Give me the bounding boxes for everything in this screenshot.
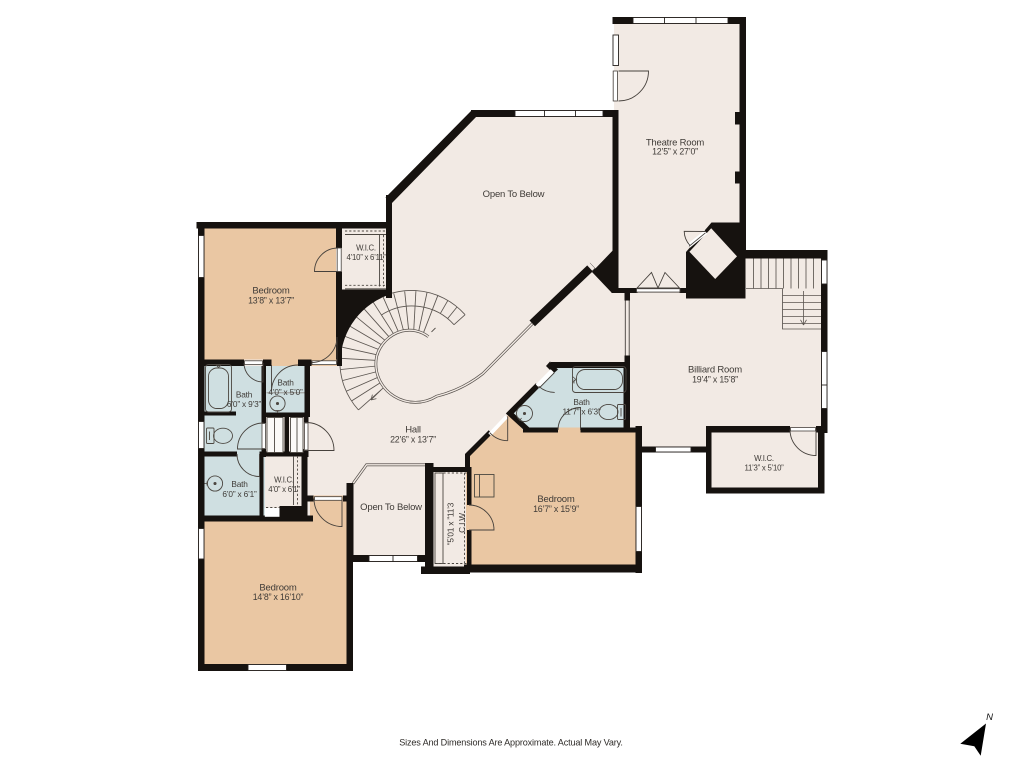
svg-text:4’0” x 5’0”: 4’0” x 5’0”	[268, 387, 303, 397]
svg-text:Bath: Bath	[573, 397, 590, 407]
svg-text:22’6” x 13’7”: 22’6” x 13’7”	[390, 435, 436, 445]
svg-text:W.I.C.: W.I.C.	[754, 454, 774, 463]
svg-text:.C.I.W: .C.I.W	[457, 513, 467, 535]
svg-text:Open To Below: Open To Below	[360, 502, 422, 513]
svg-text:W.I.C.: W.I.C.	[356, 244, 376, 253]
svg-text:N: N	[986, 712, 993, 723]
svg-text:Bath: Bath	[231, 479, 248, 489]
svg-text:Open To Below: Open To Below	[483, 189, 545, 200]
svg-text:16’7” x 15’9”: 16’7” x 15’9”	[533, 504, 579, 514]
svg-text:”5’01 x ”11’3: ”5’01 x ”11’3	[446, 502, 456, 545]
svg-text:11’3” x 5’10”: 11’3” x 5’10”	[744, 464, 784, 473]
svg-text:6’0” x 6’1”: 6’0” x 6’1”	[222, 489, 257, 499]
svg-text:14’8” x 16’10”: 14’8” x 16’10”	[253, 592, 304, 602]
svg-text:13’8” x 13’7”: 13’8” x 13’7”	[248, 296, 294, 306]
svg-text:4’10” x 6’11”: 4’10” x 6’11”	[346, 253, 386, 262]
svg-text:W.I.C.: W.I.C.	[274, 476, 294, 485]
svg-text:6’0” x 9’3”: 6’0” x 9’3”	[227, 399, 262, 409]
svg-text:Sizes And Dimensions Are Appro: Sizes And Dimensions Are Approximate. Ac…	[399, 738, 623, 748]
svg-text:12’5” x 27’0”: 12’5” x 27’0”	[652, 147, 698, 157]
svg-text:4’0” x 6’1”: 4’0” x 6’1”	[268, 485, 300, 494]
svg-text:Bath: Bath	[236, 390, 253, 400]
svg-text:Bath: Bath	[277, 378, 294, 388]
svg-text:11’7” x 6’3”: 11’7” x 6’3”	[562, 407, 600, 417]
svg-text:19’4” x 15’8”: 19’4” x 15’8”	[692, 375, 738, 385]
